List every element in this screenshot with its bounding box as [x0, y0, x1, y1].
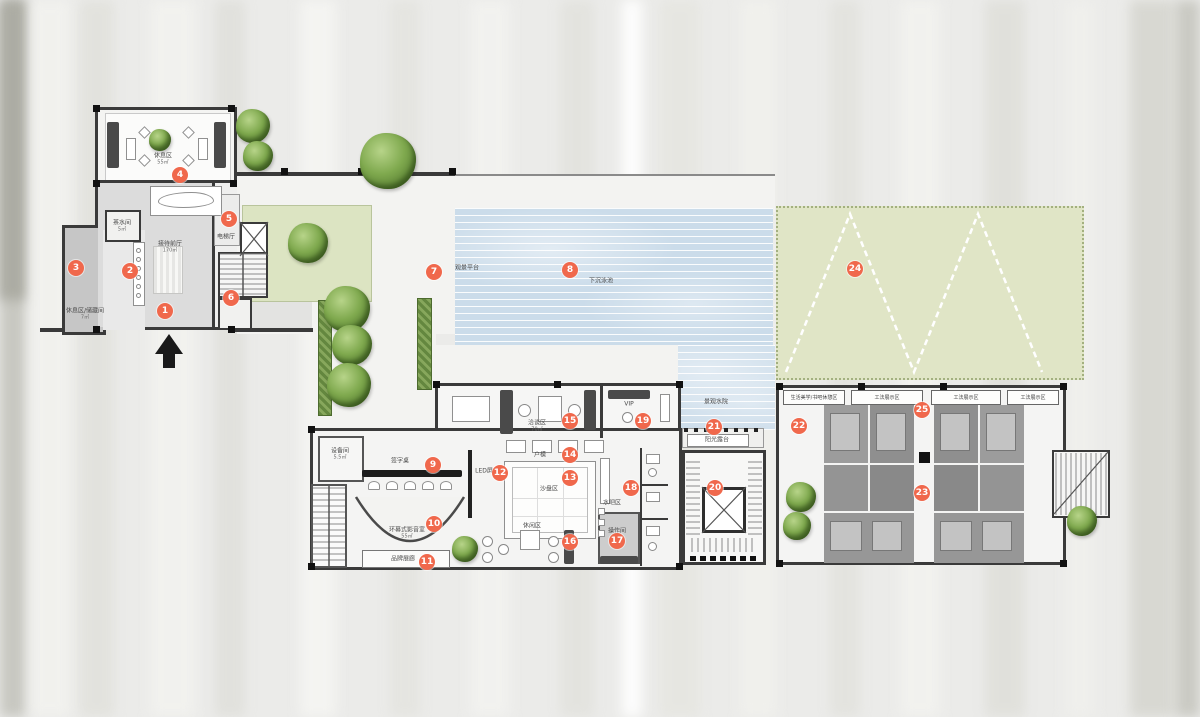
plan-marker-number: 10 — [428, 519, 441, 529]
plan-marker-number: 15 — [564, 416, 577, 426]
plan-marker: 14 — [562, 447, 578, 463]
round-table — [518, 404, 531, 417]
lounge-chair — [548, 552, 559, 563]
display-box: 工法展示区 — [1007, 390, 1059, 405]
sample-room — [870, 465, 914, 511]
sample-room — [934, 465, 978, 511]
bar-counter — [600, 458, 610, 504]
plan-marker-number: 13 — [564, 473, 577, 483]
room-label: 设备间 5.5㎡ — [331, 447, 349, 460]
plan-marker-number: 1 — [162, 306, 168, 316]
room-label: 休闲区 — [523, 522, 541, 529]
floor-plan: 生活美学/书吧休憩区 工法展示区 工法展示区 工法展示区 — [0, 0, 1200, 717]
hedge-strip — [417, 298, 432, 390]
elevator-shaft — [240, 222, 268, 256]
sofa — [107, 122, 119, 168]
led-screen-wall — [468, 450, 472, 518]
plan-marker: 2 — [122, 263, 138, 279]
plan-marker-number: 21 — [708, 422, 721, 432]
toilet-wall — [640, 484, 668, 486]
bar-stool — [598, 508, 605, 515]
tree-icon — [786, 482, 816, 512]
chair — [440, 481, 452, 490]
plan-marker-number: 22 — [793, 421, 806, 431]
model-display-box — [584, 440, 604, 453]
pool-walkway — [435, 345, 680, 385]
lounge-chair — [548, 536, 559, 547]
plan-marker-number: 18 — [625, 483, 638, 493]
room-label: 沙盘区 — [540, 485, 558, 492]
floor-plan-canvas: 生活美学/书吧休憩区 工法展示区 工法展示区 工法展示区 — [0, 0, 1200, 717]
plan-marker-number: 14 — [564, 450, 577, 460]
display-box-label: 生活美学/书吧休憩区 — [791, 394, 838, 401]
tree-icon — [288, 223, 328, 263]
vip-table — [622, 412, 633, 423]
lounge-chair — [482, 552, 493, 563]
room-label: 茶水间 5㎡ — [113, 219, 131, 232]
side-table — [126, 138, 136, 160]
plan-marker: 8 — [562, 262, 578, 278]
vip-partition — [600, 386, 603, 438]
room-label: 下沉泳池 — [589, 277, 613, 284]
room-label: 品牌展廊 — [391, 555, 415, 562]
display-box-label: 工法展示区 — [1020, 394, 1045, 401]
toilet-wall — [640, 518, 668, 520]
reception-desk-stone — [158, 192, 214, 208]
plan-marker: 22 — [791, 418, 807, 434]
plan-marker-number: 16 — [564, 537, 577, 547]
entrance-arrow-icon — [155, 334, 183, 368]
plan-marker: 7 — [426, 264, 442, 280]
wc-fixture — [646, 526, 660, 536]
water-court — [678, 345, 775, 430]
plan-marker-number: 19 — [637, 416, 650, 426]
plan-marker-number: 6 — [228, 293, 234, 303]
plan-marker-number: 25 — [916, 405, 929, 415]
rest-area-room — [105, 113, 231, 183]
tree-icon — [452, 536, 478, 562]
swimming-pool — [455, 208, 773, 345]
tree-icon — [360, 133, 416, 189]
room-label: LED屏 — [475, 467, 493, 474]
south-stair — [311, 484, 347, 568]
plan-marker: 6 — [223, 290, 239, 306]
basin — [648, 468, 657, 477]
room-label: 电梯厅 — [217, 233, 235, 240]
room-label: 景观水院 — [704, 398, 728, 405]
tree-icon — [783, 512, 811, 540]
room-label: 水吧区 — [603, 499, 621, 506]
model-display-box — [506, 440, 526, 453]
room-label: 休息区/储藏间 7㎡ — [66, 307, 104, 320]
plan-marker-number: 23 — [916, 488, 929, 498]
plan-marker-number: 24 — [849, 264, 862, 274]
basin — [648, 542, 657, 551]
tree-icon — [1067, 506, 1097, 536]
plan-marker: 17 — [609, 533, 625, 549]
center-table — [538, 396, 562, 422]
corridor-column — [919, 452, 930, 463]
sun-lawn — [776, 206, 1084, 380]
chair — [386, 481, 398, 490]
plan-marker-number: 17 — [611, 536, 624, 546]
bridge-posts — [684, 428, 762, 432]
plan-marker-number: 3 — [73, 263, 79, 273]
plan-marker: 1 — [157, 303, 173, 319]
plan-marker: 24 — [847, 261, 863, 277]
room-label: VIP — [624, 400, 634, 407]
wc-fixture — [646, 492, 660, 502]
plan-marker: 9 — [425, 457, 441, 473]
plan-marker: 5 — [221, 211, 237, 227]
wc-fixture — [646, 454, 660, 464]
chair — [368, 481, 380, 490]
lounge-chair — [498, 544, 509, 555]
bar-stool — [598, 530, 605, 537]
tree-icon — [332, 325, 372, 365]
display-box: 生活美学/书吧休憩区 — [783, 390, 845, 405]
vip-sofa — [608, 390, 650, 399]
display-box-label: 工法展示区 — [874, 394, 899, 401]
plan-marker: 20 — [707, 480, 723, 496]
vip-desk — [660, 394, 670, 422]
sample-room — [824, 465, 868, 511]
plan-marker: 21 — [706, 419, 722, 435]
pool-deck — [455, 174, 775, 212]
plan-marker-number: 11 — [421, 557, 434, 567]
sofa — [584, 390, 596, 430]
side-table — [198, 138, 208, 160]
plan-marker-number: 20 — [709, 483, 722, 493]
display-box-label: 工法展示区 — [953, 394, 978, 401]
core-dashed-strip — [690, 556, 760, 561]
room-label: 观景平台 — [455, 264, 479, 271]
tree-icon — [327, 363, 371, 407]
sample-room — [980, 465, 1024, 511]
plan-marker: 10 — [426, 516, 442, 532]
planter-table — [520, 530, 540, 550]
plan-marker-number: 5 — [226, 214, 232, 224]
room-label: 接待前厅 170㎡ — [158, 240, 182, 253]
toilet-wall — [640, 448, 642, 566]
room-label: 户模 — [534, 451, 546, 458]
plan-marker-number: 8 — [567, 265, 573, 275]
sofa — [500, 390, 513, 434]
plan-marker: 18 — [623, 480, 639, 496]
room-label: 环幕式影音室 55㎡ — [389, 526, 425, 539]
tree-icon — [243, 141, 273, 171]
tree-icon — [236, 109, 270, 143]
sofa — [214, 122, 226, 168]
signing-table — [362, 470, 462, 477]
display-box: 工法展示区 — [931, 390, 1001, 405]
plan-marker: 25 — [914, 402, 930, 418]
plan-marker-number: 9 — [430, 460, 436, 470]
chair — [404, 481, 416, 490]
plan-marker: 19 — [635, 413, 651, 429]
display-box: 工法展示区 — [851, 390, 923, 405]
plan-marker: 4 — [172, 167, 188, 183]
room-label: 洽谈区 70㎡ — [528, 419, 546, 432]
plan-marker-number: 12 — [494, 468, 507, 478]
lounge-chair — [482, 536, 493, 547]
plan-marker: 11 — [419, 554, 435, 570]
plan-marker: 12 — [492, 465, 508, 481]
plan-marker: 3 — [68, 260, 84, 276]
tree-icon — [149, 129, 171, 151]
plan-marker: 16 — [562, 534, 578, 550]
plan-marker: 13 — [562, 470, 578, 486]
plan-marker-number: 2 — [127, 266, 133, 276]
wall — [98, 180, 237, 183]
bar-stool — [598, 519, 605, 526]
room-label: 阳光露台 — [705, 436, 729, 443]
dining-table — [452, 396, 490, 422]
plan-marker-number: 4 — [177, 170, 183, 180]
plan-marker: 15 — [562, 413, 578, 429]
room-label: 签字桌 — [391, 457, 409, 464]
prep-counter — [600, 556, 638, 564]
plan-marker: 23 — [914, 485, 930, 501]
plan-marker-number: 7 — [431, 267, 437, 277]
chair — [422, 481, 434, 490]
room-label: 休息区 55㎡ — [154, 152, 172, 165]
